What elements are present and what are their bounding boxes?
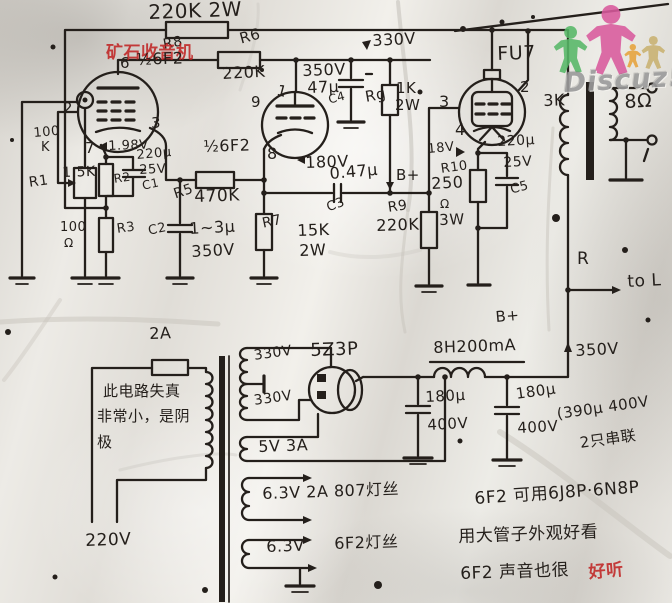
label-pot-value: 100 [33, 125, 60, 140]
label-bplus-350v: 350V [575, 341, 619, 359]
label-t2-pin8: 8 [267, 146, 278, 162]
label-c4-volt: 350V [302, 61, 346, 79]
label-c6-volt: 400V [427, 416, 469, 433]
power-transformer-core [219, 356, 229, 602]
label-r6-value: 220K [222, 64, 266, 82]
label-r10-watt: 3W [439, 212, 465, 228]
label-mains-volt: 220V [85, 531, 132, 550]
to-l-arrow-icon [612, 286, 621, 294]
filament-arrow-icon [303, 516, 312, 524]
330v-marker-icon [362, 40, 371, 50]
resistor-r10 [470, 170, 486, 202]
label-r10-value: 250 [431, 174, 464, 192]
fuse-2a [152, 360, 188, 375]
label-note-right-2: 用大管子外观好看 [458, 524, 599, 546]
label-choke-value: 8H200mA [433, 337, 516, 356]
label-note-right-3: 6F2 声音也很 [460, 562, 569, 583]
label-fu7-cathode-volt: 18V [427, 141, 455, 156]
label-c2-ref: C2 [147, 221, 168, 238]
filament-arrow-icon [308, 564, 317, 572]
label-c7-volt: 400V [517, 419, 559, 436]
label-c1-ref: C1 [141, 176, 160, 191]
label-r7-value: 15K [297, 222, 330, 239]
label-r10-ohm: Ω [440, 198, 450, 210]
label-discuz-logo-text: Discuz! [563, 64, 672, 97]
label-note-right-3-red: 好听 [588, 562, 624, 582]
label-fu7-name: FU7 [497, 44, 536, 64]
tube-5z3p [309, 367, 362, 413]
label-fuse-value: 2A [149, 325, 172, 342]
schematic-photo: 220K 2WR8矿石收音机R6220K6½6F22371.98V220μ25V… [0, 0, 672, 603]
label-rg-2w: 2W [395, 98, 420, 113]
label-t1-pin7: 7 [85, 141, 95, 156]
label-c2-value: 1~3μ [189, 219, 236, 237]
label-c1-uf: 220μ [136, 146, 172, 162]
label-c5-uf: 220μ [497, 133, 535, 149]
label-to-l: to L [627, 272, 662, 291]
resistor-r9 [421, 212, 437, 248]
label-fil-807: 6.3V 2A 807灯丝 [262, 481, 399, 502]
label-r3-ohm: Ω [64, 237, 74, 249]
label-r1-ref: R1 [28, 173, 49, 190]
label-rectifier-name: 5Z3P [310, 340, 359, 360]
label-r9-value: 220K [376, 216, 420, 233]
label-t2-name: ½6F2 [203, 137, 251, 155]
label-c1-volt: 25V [139, 163, 167, 177]
label-r7-watt: 2W [299, 242, 327, 259]
label-note-left-2: 非常小，是阴 [97, 409, 190, 424]
label-fu7-pin3: 3 [439, 94, 450, 110]
label-screen-330v: 330V [372, 31, 416, 49]
label-r5-value: 470K [194, 187, 240, 206]
label-rg-ref: Rg [364, 86, 387, 104]
label-t1-pin6: 6 [120, 56, 130, 71]
label-pot-value-k: K [41, 141, 50, 154]
label-note-left-1: 此电路失真 [103, 384, 181, 399]
label-fu7-pin2: 2 [520, 80, 530, 95]
label-r3-ref: R3 [116, 220, 136, 235]
label-r2-value: 1.5K [62, 165, 96, 180]
label-r8-value: 220K 2W [148, 0, 242, 22]
label-t1-pin3: 3 [151, 116, 161, 131]
label-opt-primary: 3K [543, 92, 565, 109]
label-rg-1k: 1K [396, 81, 416, 96]
label-t1-name: ½6F2 [136, 50, 184, 68]
label-feedback-r: R [577, 251, 589, 268]
label-fil-6f2-volt: 6.3V [266, 538, 305, 555]
label-r7-ref: R7 [261, 213, 283, 231]
bplus-up-arrow-icon [564, 342, 572, 352]
filament-arrow-icon [303, 474, 312, 482]
resistor-r2 [99, 164, 113, 196]
label-r9-ref: R9 [387, 198, 408, 215]
label-fu7-pin4: 4 [455, 122, 466, 138]
label-bplus-mid: B+ [495, 308, 520, 325]
label-bplus-top: B+ [396, 168, 420, 183]
label-t1-pin2: 2 [63, 101, 73, 116]
label-c5-volt: 25V [503, 154, 533, 169]
resistor-r3 [99, 218, 113, 252]
label-r3-value: 100 [60, 221, 86, 234]
label-c2-volt: 350V [191, 242, 235, 260]
label-t2-pin9: 9 [251, 95, 261, 110]
bplus-down-arrow-icon [386, 182, 394, 190]
fu7-top-cap [484, 70, 500, 79]
label-fil-5v: 5V 3A [258, 437, 308, 455]
label-fil-6f2: 6F2灯丝 [334, 534, 399, 552]
label-note-left-3: 极 [97, 435, 113, 450]
label-c6-uf: 180μ [425, 388, 466, 405]
label-c3-value: 0.47μ [329, 162, 379, 182]
18v-marker-icon [456, 147, 465, 157]
label-r2-ref: R2 [113, 171, 131, 185]
